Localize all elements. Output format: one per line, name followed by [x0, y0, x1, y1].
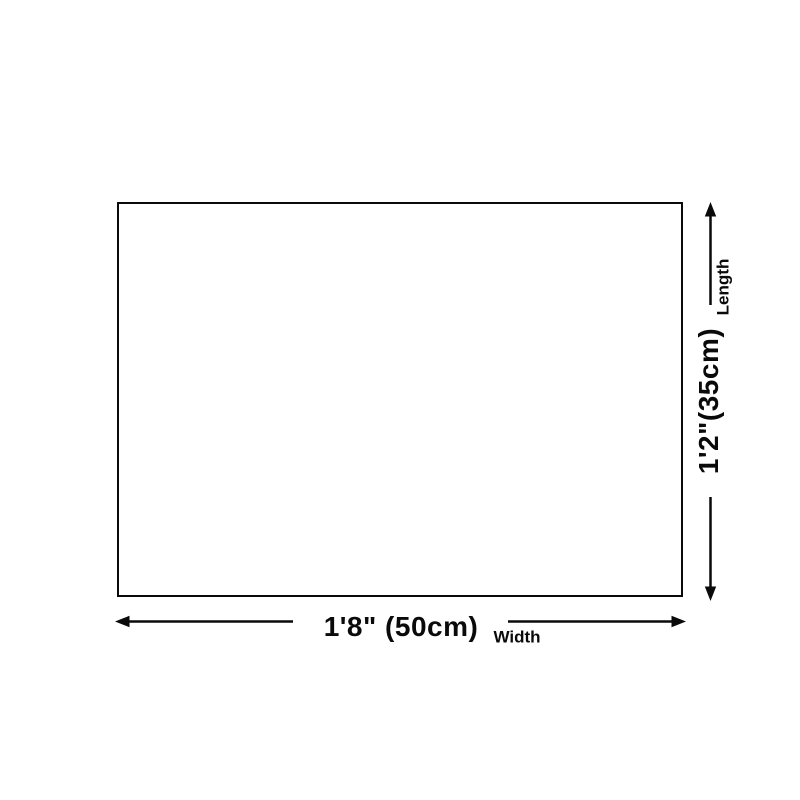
dimension-diagram: 1'2"(35cm) Length 1'8" (50cm) Width: [0, 0, 800, 800]
length-axis-label: Length: [715, 259, 732, 316]
width-axis-label: Width: [493, 629, 540, 646]
width-arrow-left: [115, 616, 293, 627]
width-arrow-right: [508, 616, 686, 627]
arrow-up-icon: [705, 202, 716, 217]
arrow-right-icon: [672, 616, 687, 627]
arrow-left-icon: [115, 616, 130, 627]
length-arrow-down: [705, 497, 716, 601]
length-value-label: 1'2"(35cm): [695, 328, 723, 474]
arrow-down-icon: [705, 587, 716, 602]
product-outline-rectangle: [117, 202, 683, 597]
width-value-label: 1'8" (50cm): [324, 613, 479, 641]
